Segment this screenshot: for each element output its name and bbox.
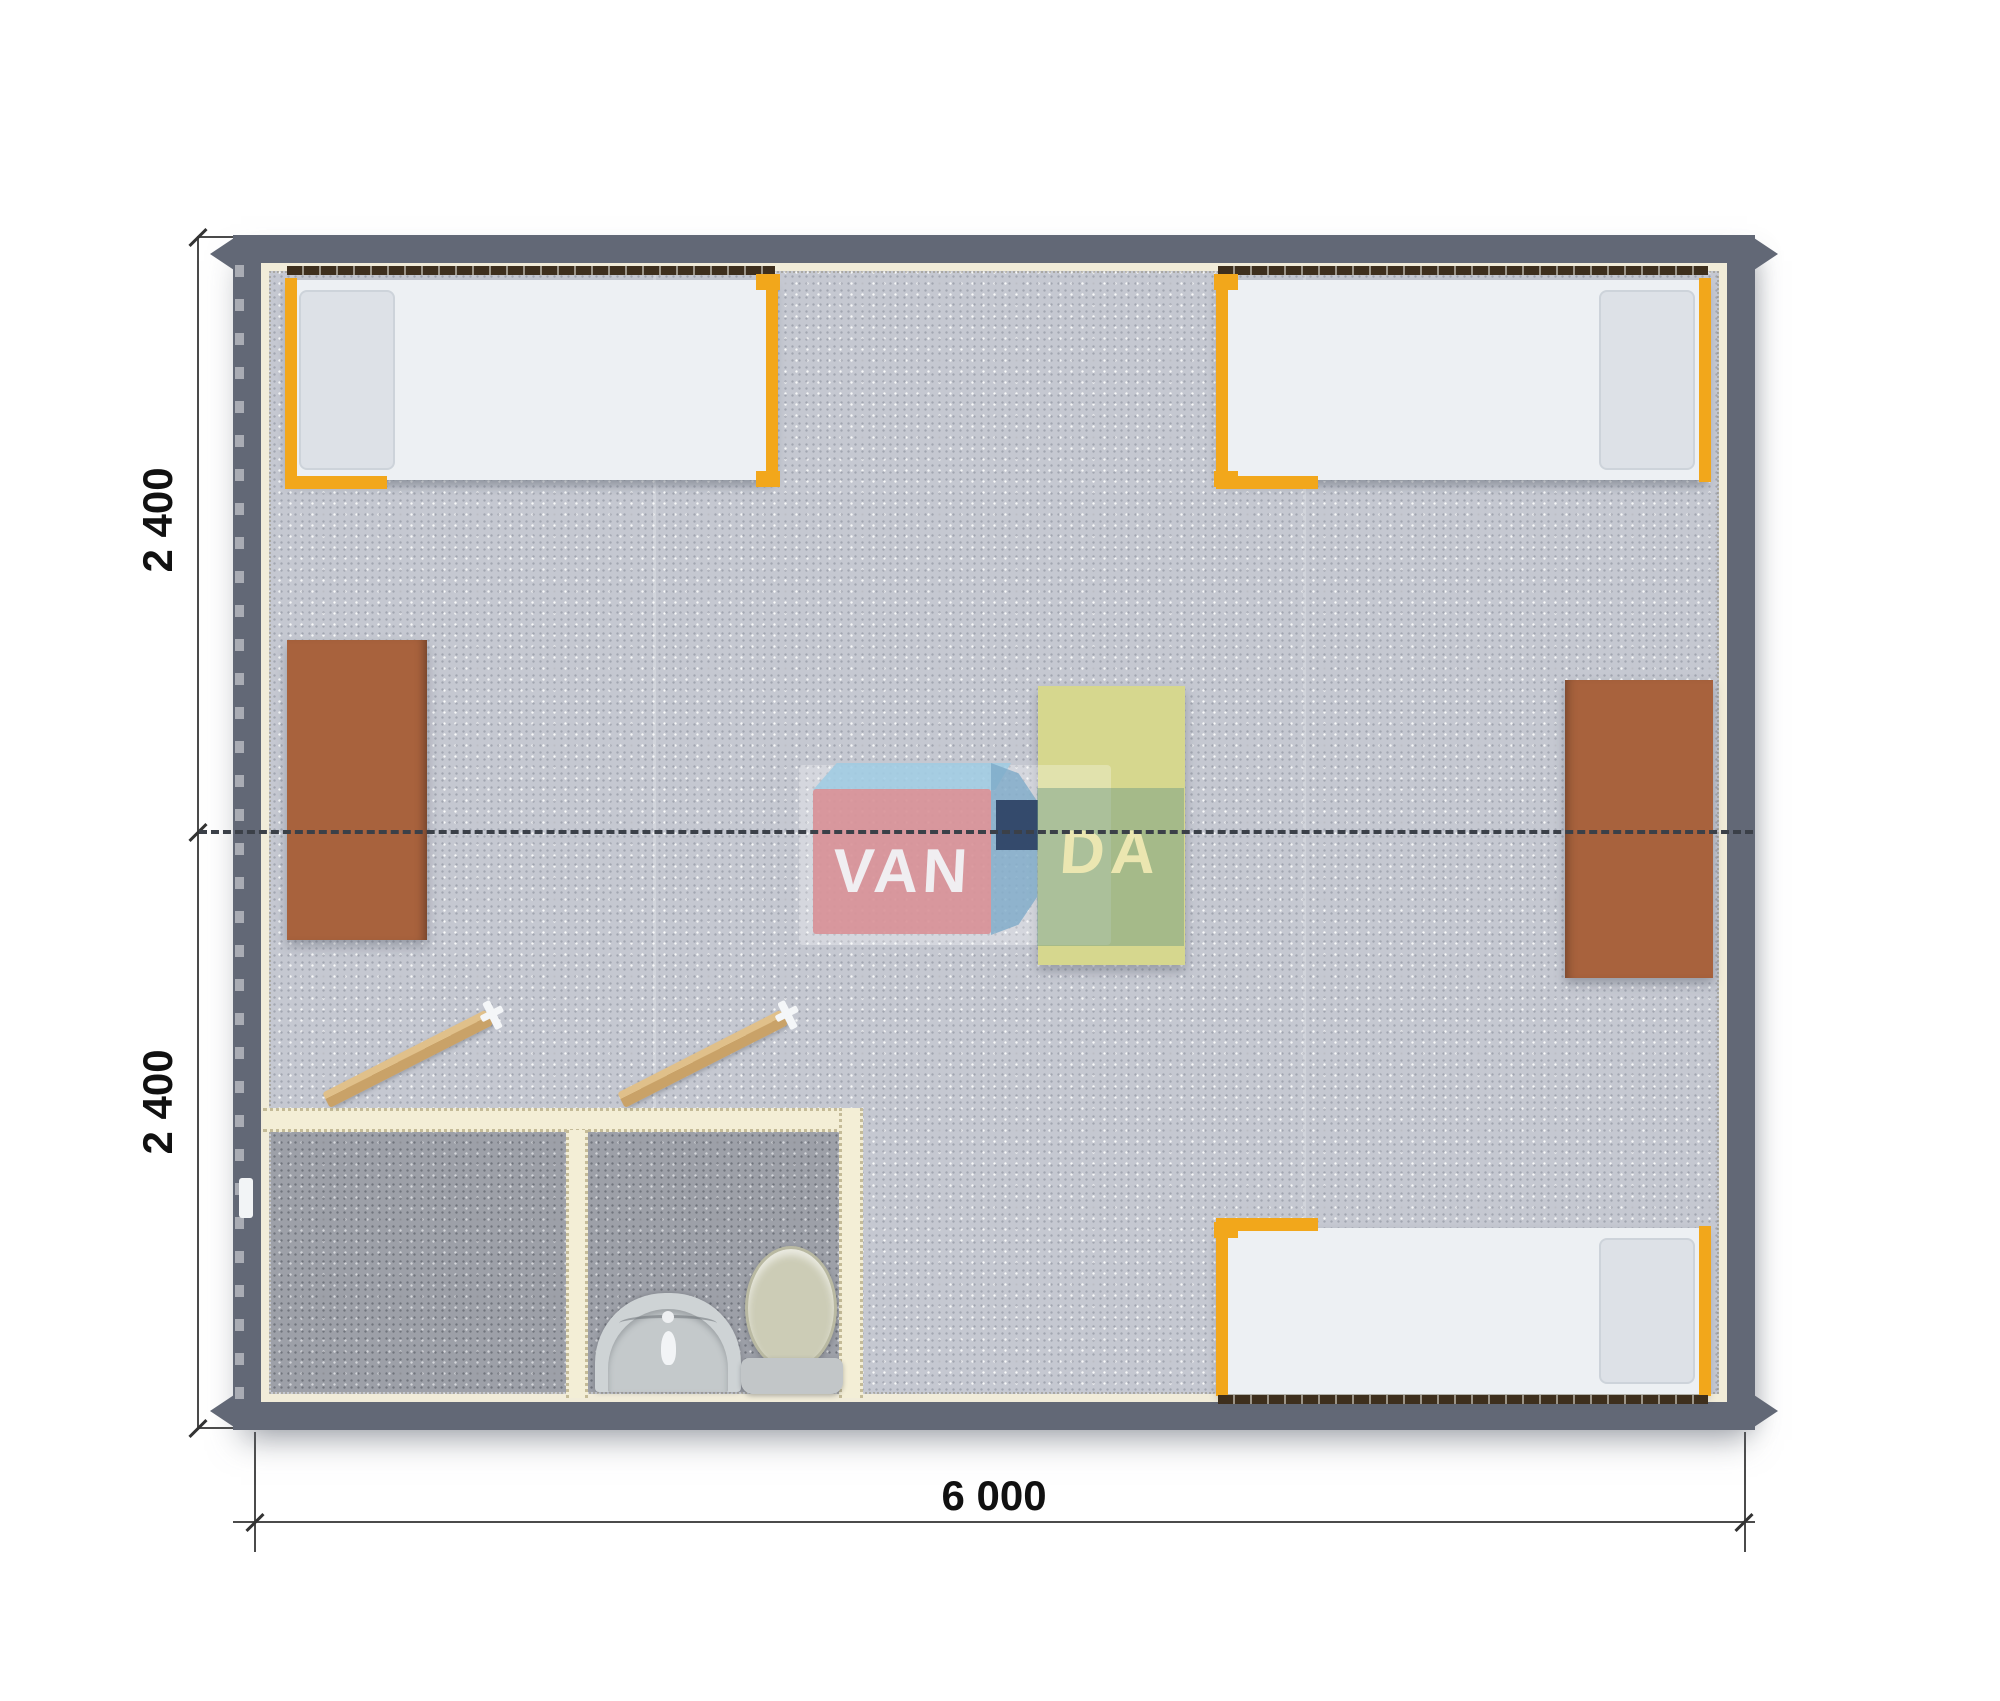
bed-frame-rail [1216,278,1228,482]
single-bed-top-left [287,280,775,480]
corner-fitting-bottom-left-icon [210,1395,234,1427]
single-bed-top-right [1218,280,1708,480]
dimension-extension-line [1744,1432,1746,1552]
pillow [1599,290,1695,470]
bed-frame-rail [766,278,778,482]
toilet-tank [741,1358,843,1394]
bed-frame-rail [1699,1226,1711,1396]
bed-frame-corner [1214,274,1238,290]
watermark-text-van: VAN [831,836,973,907]
pillow [299,290,395,470]
vanda-watermark-logo: VAN DA [795,760,1195,955]
bathroom-wall-top [263,1108,863,1132]
shower-room-floor [271,1132,566,1392]
bed-frame-corner [756,274,780,290]
horizontal-dimension-line [233,1521,1755,1523]
bed-frame-corner [1214,471,1238,487]
bed-wall-rail [1218,266,1708,275]
corner-fitting-top-right-icon [1754,238,1778,270]
dimension-label-6000: 6 000 [941,1472,1046,1520]
dimension-label-2400-bottom: 2 400 [134,1049,182,1154]
pillow [1599,1238,1695,1384]
bed-frame-rail [285,278,297,482]
dimension-label-2400-top: 2 400 [134,467,182,572]
bed-wall-rail [287,266,775,275]
bed-wall-rail [1218,1395,1708,1404]
bathroom-wall-divider [566,1130,588,1398]
corner-fitting-top-left-icon [210,238,234,270]
faucet-icon [661,1331,676,1365]
watermark-text-da: DA [1057,817,1164,888]
floor-plan-screenshot: 2 400 2 400 6 000 [0,0,2000,1701]
faucet-dot-icon [662,1311,674,1323]
bed-frame-rail [1699,278,1711,482]
desk-right [1565,680,1713,978]
dimension-extension-line [254,1432,256,1552]
module-joint-dashed-line [199,830,1753,834]
bed-frame-rail [1216,1226,1228,1396]
bed-frame-corner [756,471,780,487]
exterior-door-handle [239,1178,253,1218]
desk-left [287,640,427,940]
watermark-box-top-face [813,763,1011,790]
watermark-pink-box: VAN [813,789,991,934]
single-bed-bottom-right [1218,1228,1708,1394]
corner-fitting-bottom-right-icon [1754,1395,1778,1427]
toilet [745,1246,837,1370]
bed-frame-bracket [285,476,387,489]
bathroom-wall-right [839,1108,863,1398]
watermark-text-da-wrap: DA [1037,794,1184,910]
bed-frame-corner [1214,1222,1238,1238]
watermark-navy-square [996,800,1038,850]
